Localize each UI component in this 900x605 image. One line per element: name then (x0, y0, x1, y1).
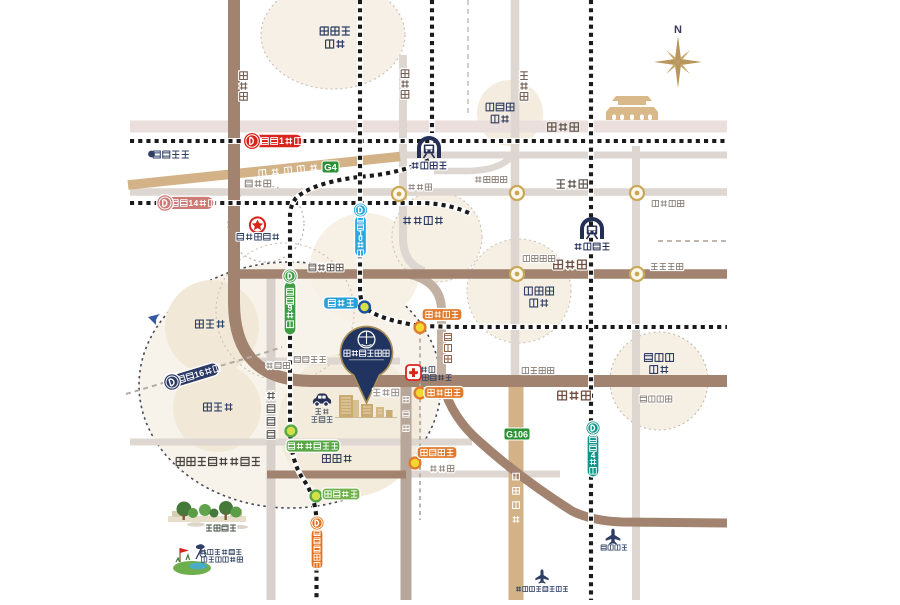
svg-text:G4: G4 (324, 163, 337, 174)
svg-text:9: 9 (288, 303, 293, 313)
svg-text:N: N (674, 24, 682, 36)
svg-text:4: 4 (591, 450, 596, 460)
svg-text:G106: G106 (506, 430, 528, 440)
svg-text:0: 0 (358, 234, 363, 243)
svg-text:1: 1 (279, 136, 284, 146)
svg-text:4: 4 (194, 198, 199, 208)
